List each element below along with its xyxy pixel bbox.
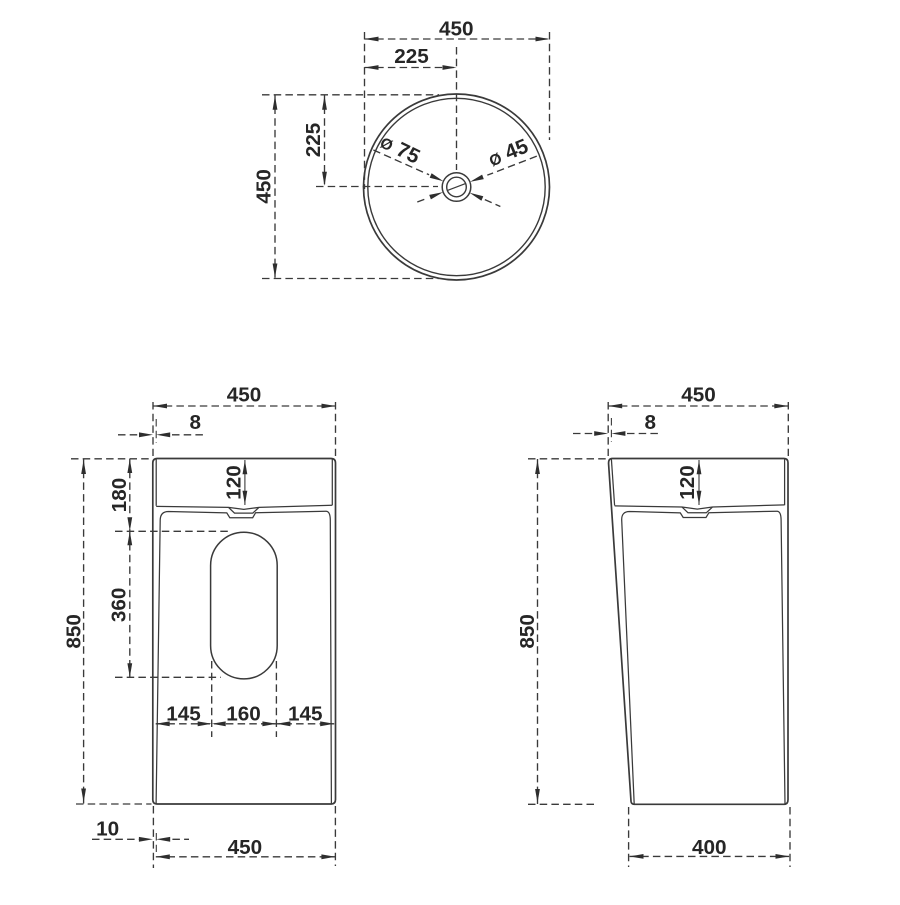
svg-text:160: 160 (226, 702, 261, 725)
svg-text:225: 225 (302, 123, 325, 158)
svg-text:850: 850 (516, 614, 539, 649)
svg-text:450: 450 (227, 384, 262, 407)
svg-text:225: 225 (394, 45, 429, 68)
svg-text:400: 400 (692, 836, 727, 859)
svg-text:850: 850 (63, 614, 86, 649)
svg-text:145: 145 (166, 702, 201, 725)
svg-text:8: 8 (645, 411, 657, 434)
svg-text:450: 450 (681, 384, 716, 407)
svg-text:120: 120 (223, 465, 246, 500)
svg-text:450: 450 (439, 18, 474, 41)
svg-text:120: 120 (676, 465, 699, 500)
svg-text:180: 180 (108, 478, 131, 513)
svg-text:145: 145 (288, 702, 323, 725)
svg-text:450: 450 (253, 169, 276, 204)
svg-text:8: 8 (190, 411, 202, 434)
svg-text:360: 360 (107, 588, 130, 623)
svg-text:450: 450 (228, 836, 263, 859)
svg-text:10: 10 (96, 818, 119, 841)
